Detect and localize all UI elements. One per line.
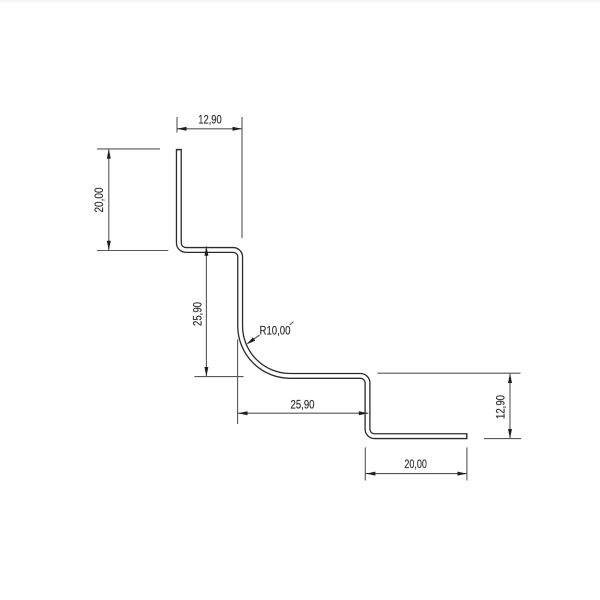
svg-text:25,90: 25,90: [191, 302, 205, 326]
svg-text:20,00: 20,00: [404, 457, 427, 471]
svg-text:12,90: 12,90: [198, 113, 222, 127]
svg-text:25,90: 25,90: [291, 398, 315, 412]
svg-text:20,00: 20,00: [92, 187, 106, 212]
svg-text:12,90: 12,90: [494, 395, 508, 419]
svg-text:R10,00: R10,00: [260, 324, 291, 338]
